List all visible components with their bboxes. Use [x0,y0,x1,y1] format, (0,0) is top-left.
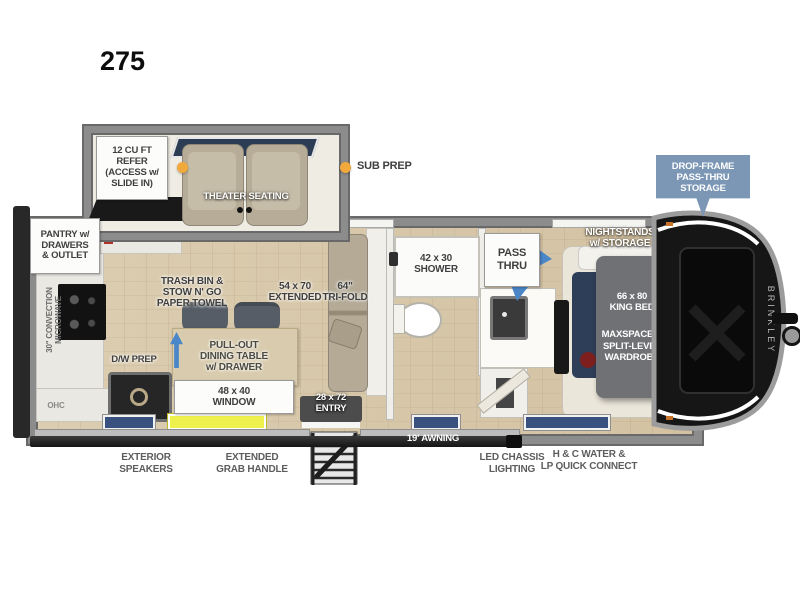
floorplan-model-number: 275 [100,46,145,77]
ohc-label: OHC [38,402,74,411]
theater-seating-label: THEATER SEATING [188,192,304,203]
trash-bin-label: TRASH BIN & STOW N' GO PAPER TOWEL [136,276,248,310]
hitch-tongue [772,313,798,324]
tri-fold-sofa [328,234,368,392]
cupholder [237,207,243,213]
entry-label: 28 x 72 ENTRY [298,393,364,414]
window-48x40-label: 48 x 40 WINDOW [174,380,294,414]
window-kitchen [103,415,155,430]
sub-prep-legend-label: SUB PREP [357,160,427,172]
sink-drain [502,312,507,317]
refer-label: 12 CU FT REFER (ACCESS w/ SLIDE IN) [96,136,168,200]
awning-end-cap [506,435,522,448]
bedroom-decor [580,352,596,368]
front-cap: BRINKLEY [650,208,790,438]
floorplan-canvas: 275 [0,0,800,600]
shower-label: 42 x 30 SHOWER [402,253,470,275]
sub-prep-legend-dot-icon [340,162,351,173]
pantry-label: PANTRY w/ DRAWERS & OUTLET [30,218,100,274]
rear-bumper [13,206,30,438]
window-48x40-highlight [168,414,266,430]
grab-handle-label: EXTENDED GRAB HANDLE [190,452,314,476]
microwave-label: 30" CONVECTION MICROWAVE [46,265,68,375]
tongue-jack [782,326,800,346]
shower-head-icon [389,252,398,266]
sofa-trifold-label: 64" TRI-FOLD [320,281,370,303]
window-bedroom [524,415,610,430]
exterior-speakers-label: EXTERIOR SPEAKERS [94,452,198,476]
pass-thru-label: PASS THRU [484,233,540,287]
tv-cabinet [554,300,569,374]
cupholder [246,207,252,213]
water-lp-connect-label: H & C WATER & LP QUICK CONNECT [526,449,652,473]
window-hall [412,415,460,430]
sofa-extended-label: 54 x 70 EXTENDED [266,281,324,303]
awning-label: 19' AWNING [398,434,468,445]
dining-table-label: PULL-OUT DINING TABLE w/ DRAWER [178,340,290,374]
toilet-tank [393,304,405,334]
kitchen-faucet [130,388,148,406]
king-bed-label: 66 x 80 KING BED [610,291,655,314]
dw-prep-label: D/W PREP [102,355,166,366]
sub-prep-dot-icon [177,162,188,173]
vanity-sink [490,296,528,340]
